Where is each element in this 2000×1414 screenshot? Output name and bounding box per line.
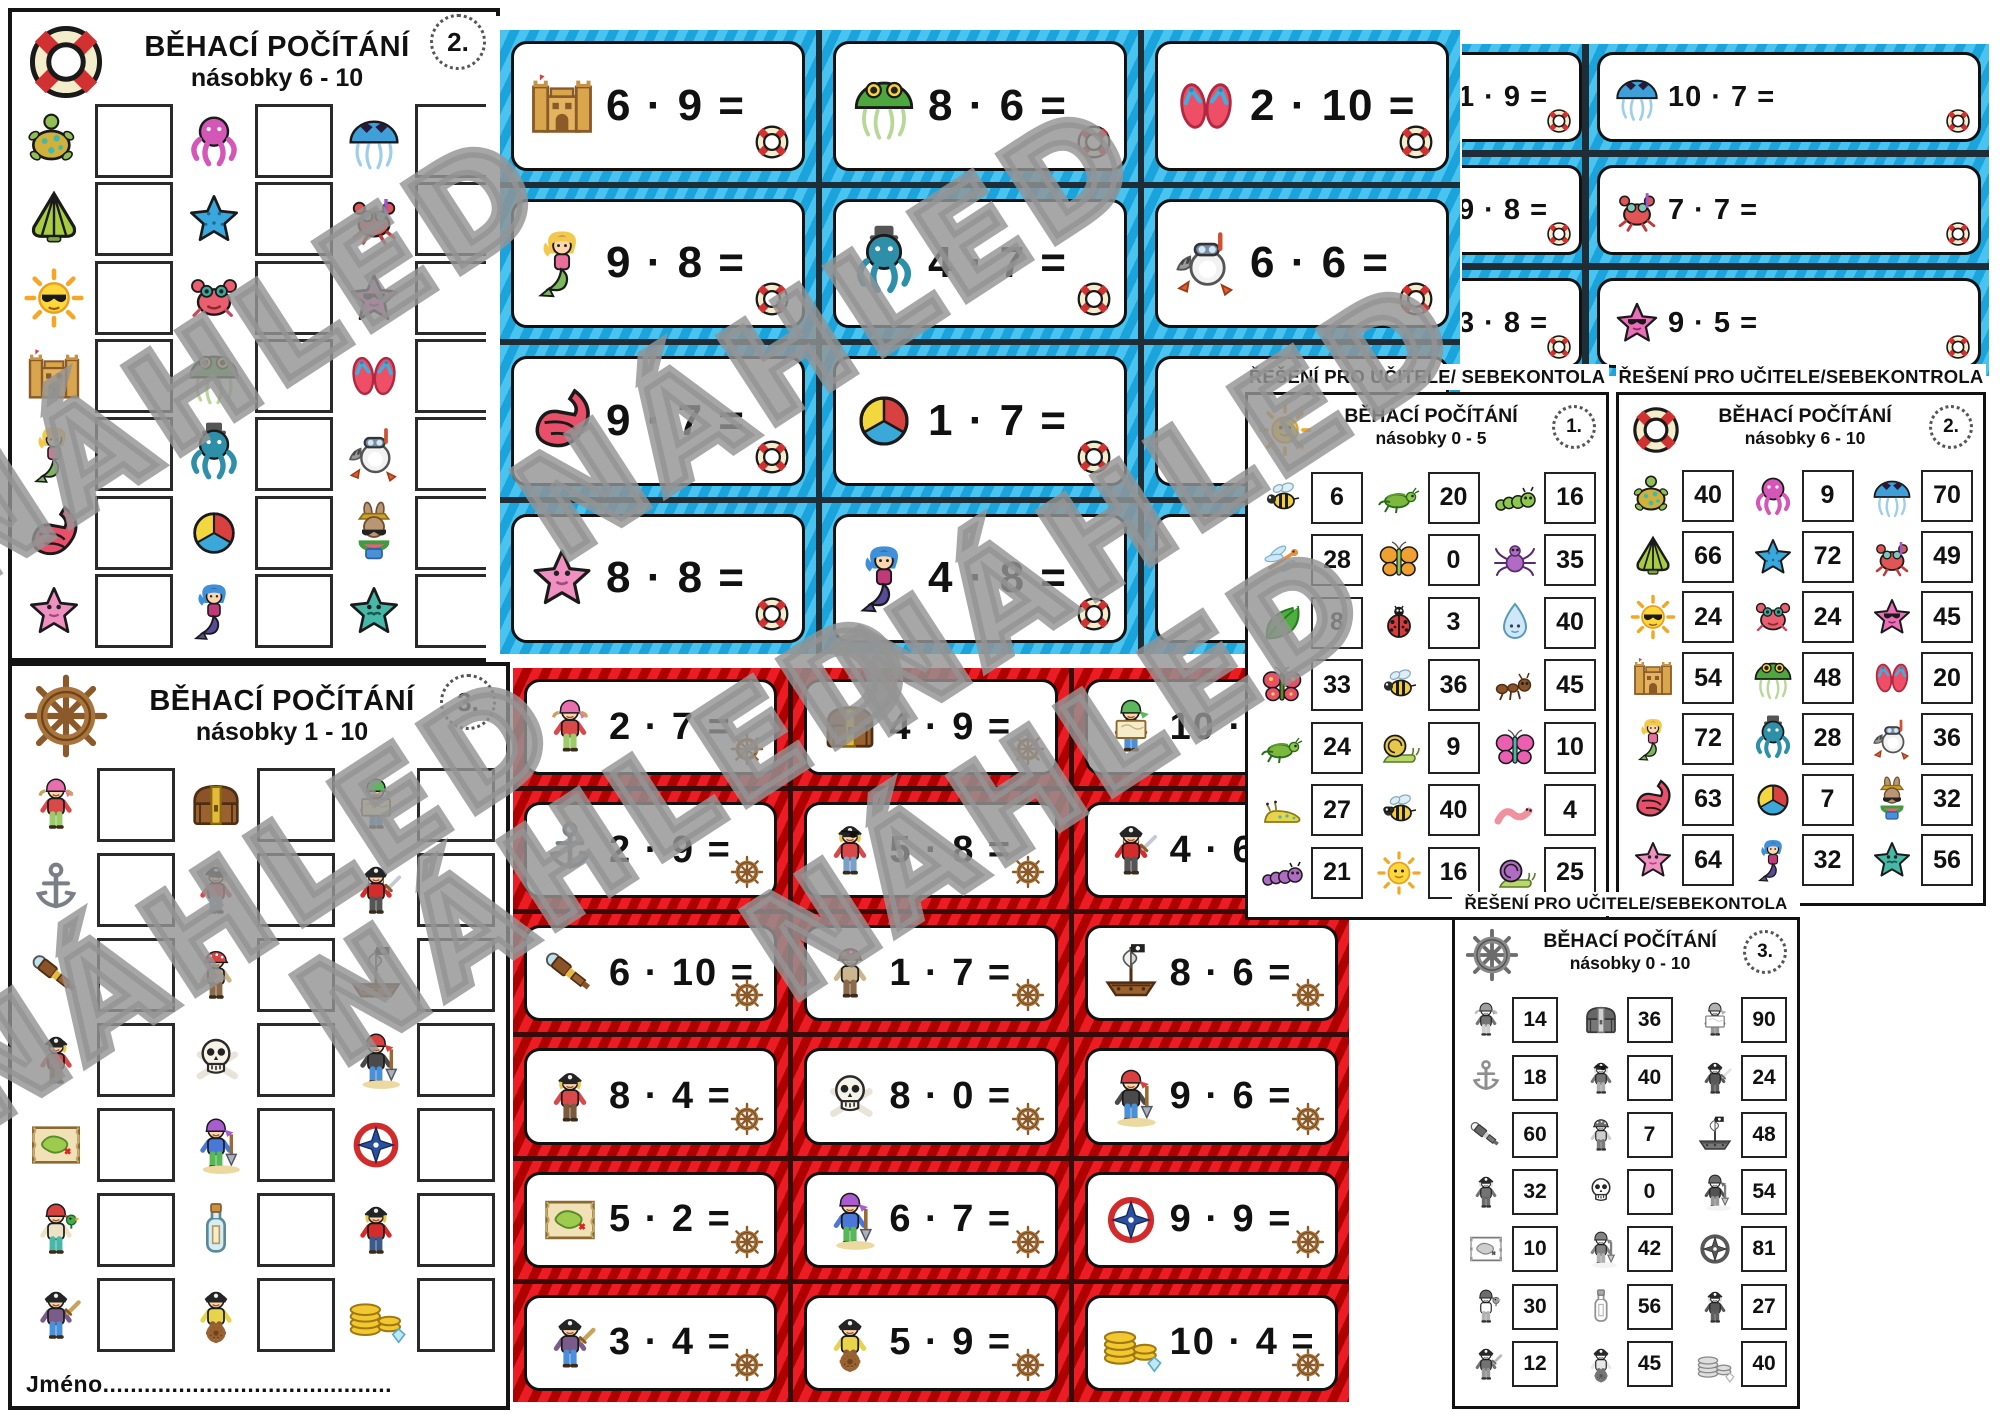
life-ring-icon [20,16,112,108]
math-card: 1 · 7 = [822,345,1138,497]
worksheet-row [22,572,493,650]
math-card-face: 5 · 2 = [524,1172,777,1268]
sheet-number-badge: 3. [1743,930,1787,974]
pirate-girl-icon [537,694,603,760]
bunny-icon [342,501,406,565]
pirate-eyepatch-icon [184,858,248,922]
ship-wheel-icon [1010,1224,1046,1260]
ship-wheel-icon [729,1347,765,1383]
answer-box [257,938,335,1012]
math-card: 9 · 9 = [1074,1161,1349,1279]
butterfly-pink-icon [1491,724,1539,772]
icon-answer-pair: 14 [1465,997,1558,1043]
worksheet-row [24,932,502,1017]
butterfly-red-icon [1258,661,1306,709]
spyglass-icon [1465,1114,1507,1156]
answer-box [255,496,333,570]
math-card: 4 · 7 = [822,188,1138,340]
answers-2-titlebar: BĚHACÍ POČÍTÁNÍ násobky 6 - 10 2. [1619,395,1983,459]
wheel-boy-icon [1580,1343,1622,1385]
life-ring-icon [1943,106,1973,136]
math-card: 5 · 2 = [513,1161,788,1279]
answers-row: 40970 [1629,470,1973,522]
treasure-chest-icon [817,694,883,760]
icon-answer-pair: 18 [1465,1055,1558,1101]
math-card-face: 8 · 8 = [511,514,805,644]
boy-shovel-icon [1694,1171,1736,1213]
answer-value: 30 [1512,1284,1558,1330]
answer-value: 54 [1741,1169,1787,1215]
compass-icon [1098,1187,1164,1253]
compass-icon [1694,1228,1736,1270]
answer-value: 35 [1544,534,1596,586]
icon-answer-pair: 66 [1629,531,1734,583]
page-subtitle: násobky 0 - 5 [1314,428,1548,449]
math-card: 5 · 9 = [793,1284,1068,1402]
blue-cards-back-grid: 1 · 9 =10 · 7 =9 · 8 =7 · 7 =3 · 8 =9 · … [1452,44,1989,376]
icon-answer-pair: 81 [1694,1226,1787,1272]
answer-value: 33 [1311,659,1363,711]
math-card: 1 · 9 = [1452,44,1582,150]
icon-answer-pair: 9 [1749,470,1854,522]
coins-icon [344,1283,408,1347]
octopus-pink-icon [1749,472,1797,520]
icon-answer-pair: 40 [1629,470,1734,522]
answer-value: 40 [1627,1055,1673,1101]
answer-value: 49 [1921,531,1973,583]
math-card: 9 · 8 = [500,188,816,340]
answer-value: 40 [1741,1341,1787,1387]
math-card: 9 · 6 = [1074,1037,1349,1155]
worksheet-page-3: BĚHACÍ POČÍTÁNÍ násobky 1 - 10 3. Jméno.… [8,662,510,1410]
octopus-pink-icon [182,109,246,173]
math-card: 6 · 7 = [793,1161,1068,1279]
answer-value: 45 [1544,659,1596,711]
math-card-face: 4 · 8 = [833,514,1127,644]
boy-shovel-icon [1098,1064,1164,1130]
ship-wheel-icon [1010,1347,1046,1383]
math-card: 7 · 7 = [1589,157,1989,263]
mermaid-blonde-icon [1629,715,1677,763]
expression: 4 · 8 = [928,553,1068,603]
life-ring-icon [1073,121,1115,163]
math-card-face: 4 · 7 = [833,199,1127,329]
turtle-icon [22,109,86,173]
ship-wheel-icon [729,854,765,890]
raccoon-snorkel-icon [1168,225,1244,301]
answers-sheet-2: BĚHACÍ POČÍTÁNÍ násobky 6 - 10 2. 409706… [1616,392,1986,906]
coins-icon [1694,1343,1736,1385]
starfish-pink-shades-icon [1610,296,1664,350]
page-subtitle: násobky 6 - 10 [112,64,442,93]
life-ring-icon [1073,278,1115,320]
answer-box [255,417,333,491]
answer-value: 66 [1682,531,1734,583]
icon-answer-pair: 25 [1491,847,1596,899]
starfish-teal-icon [1868,836,1916,884]
shell-red-icon [22,501,86,565]
math-card-face: 8 · 0 = [804,1048,1057,1144]
icon-answer-pair: 36 [1580,997,1673,1043]
life-ring-icon [751,593,793,635]
answer-box [257,1108,335,1182]
answer-box [417,1023,495,1097]
math-card-face: 9 · 9 = [1085,1172,1338,1268]
answer-box [95,574,173,648]
math-card: 9 · 8 = [1452,157,1582,263]
answers-header-1: ŘEŠENÍ PRO UČITELE/ SEBEKONTOLA [1245,364,1609,390]
treasure-map-icon [537,1187,603,1253]
icon-answer-pair: 54 [1629,652,1734,704]
math-card-face: 3 · 8 = [1452,278,1582,368]
raccoon-snorkel-icon [342,422,406,486]
answers-sheet-3: BĚHACÍ POČÍTÁNÍ násobky 0 - 10 3. 143690… [1452,917,1800,1409]
sun-icon [1256,401,1314,459]
icon-answer-pair: 72 [1749,531,1854,583]
pirate-girl-icon [24,773,88,837]
answer-box [255,104,333,178]
math-card: 3 · 8 = [1452,270,1582,376]
icon-answer-pair: 24 [1629,591,1734,643]
life-ring-icon [1395,121,1437,163]
answer-value: 12 [1512,1341,1558,1387]
icon-answer-pair: 70 [1868,470,1973,522]
answer-value: 32 [1921,774,1973,826]
answer-value: 45 [1921,591,1973,643]
starfish-pink-icon [22,579,86,643]
math-card-face: 6 · 6 = [1155,199,1449,329]
answer-value: 63 [1682,774,1734,826]
answer-box [415,574,493,648]
answers-row: 28035 [1258,534,1596,586]
sheet-number-badge: 2. [430,14,486,70]
math-card-face: 10 · 4 = [1085,1295,1338,1391]
answer-box [95,261,173,335]
answer-value: 40 [1544,597,1596,649]
worksheet-row [24,1188,502,1273]
math-card: 5 · 8 = [793,791,1068,909]
worksheet-2-header: BĚHACÍ POČÍTÁNÍ násobky 6 - 10 [20,18,488,106]
icon-answer-pair: 36 [1375,659,1480,711]
expression: 1 · 9 = [1458,81,1548,114]
answer-value: 81 [1741,1226,1787,1272]
shell-green-icon [1629,533,1677,581]
answers-row: 722836 [1629,713,1973,765]
answer-value: 27 [1311,784,1363,836]
starfish-blue-icon [1749,533,1797,581]
expression: 6 · 9 = [606,81,746,131]
ship-wheel-icon [1290,1224,1326,1260]
answer-box [255,261,333,335]
expression: 8 · 8 = [606,553,746,603]
answer-box [95,339,173,413]
icon-answer-pair: 20 [1868,652,1973,704]
answer-box [97,853,175,927]
icon-answer-pair: 20 [1375,472,1480,524]
answer-box [257,1023,335,1097]
icon-answer-pair: 21 [1258,847,1363,899]
math-card-face: 5 · 9 = [804,1295,1057,1391]
pirate-ship-icon [1098,940,1164,1006]
treasure-map-icon [24,1113,88,1177]
mermaid-blonde-icon [22,422,86,486]
math-card: 8 · 6 = [822,30,1138,182]
icon-answer-pair: 6 [1258,472,1363,524]
sandcastle-icon [524,68,600,144]
expression: 2 · 9 = [609,829,732,872]
worksheet-3-header: BĚHACÍ POČÍTÁNÍ násobky 1 - 10 [20,672,498,760]
answer-value: 10 [1512,1226,1558,1272]
icon-answer-pair: 63 [1629,774,1734,826]
icon-answer-pair: 49 [1868,531,1973,583]
icon-answer-pair: 27 [1258,784,1363,836]
beachball-icon [846,383,922,459]
turtle-icon [1629,472,1677,520]
math-card-face: 7 · 7 = [1597,165,1981,255]
starfish-blue-icon [182,187,246,251]
ship-wheel-icon [1290,1347,1326,1383]
expression: 8 · 4 = [609,1075,732,1118]
pirate-blond-icon [537,1064,603,1130]
life-ring-icon [751,436,793,478]
pirate-girl-red-icon [1580,1114,1622,1156]
worksheet-row [22,415,493,493]
starfish-pink-icon [524,540,600,616]
worksheet-3-grid [24,762,502,1358]
answer-box [417,853,495,927]
page-subtitle: násobky 1 - 10 [112,718,452,747]
expression: 4 · 7 = [928,238,1068,288]
answer-box [415,339,493,413]
compass-icon [344,1113,408,1177]
answer-value: 21 [1311,847,1363,899]
icon-answer-pair: 0 [1580,1169,1673,1215]
expression: 3 · 4 = [609,1321,732,1364]
expression: 5 · 8 = [889,829,1012,872]
expression: 8 · 0 = [889,1075,1012,1118]
answers-row: 63732 [1629,774,1973,826]
bee-icon [1375,661,1423,709]
answer-value: 3 [1428,597,1480,649]
crab-snorkel-icon [342,187,406,251]
octopus-teal-icon [846,225,922,301]
jellyfish-blue-icon [1610,70,1664,124]
math-card: 6 · 6 = [1144,188,1460,340]
life-ring-icon [1544,106,1574,136]
icon-answer-pair: 90 [1694,997,1787,1043]
icon-answer-pair: 0 [1375,534,1480,586]
math-card-face: 1 · 7 = [804,925,1057,1021]
flipflops-icon [342,344,406,408]
shell-red-icon [524,383,600,459]
map-boy-icon [1098,694,1164,760]
answers-row: 333645 [1258,659,1596,711]
icon-answer-pair: 28 [1258,534,1363,586]
expression: 5 · 2 = [609,1198,732,1241]
expression: 9 · 6 = [1170,1075,1293,1118]
answer-value: 90 [1741,997,1787,1043]
ship-wheel-icon [729,731,765,767]
answers-row: 124540 [1465,1341,1787,1387]
answer-value: 36 [1428,659,1480,711]
math-card: 10 · 7 = [1589,44,1989,150]
sandcastle-icon [22,344,86,408]
answer-value: 16 [1544,472,1596,524]
coins-icon [1098,1310,1164,1376]
map-boy-icon [1694,999,1736,1041]
flipflops-icon [1868,654,1916,702]
icon-answer-pair: 33 [1258,659,1363,711]
answer-value: 27 [1741,1284,1787,1330]
expression: 6 · 6 = [1250,238,1390,288]
boy-shovel-icon [344,1028,408,1092]
math-card: 6 · 10 = [513,914,788,1032]
beachball-icon [182,501,246,565]
expression: 6 · 7 = [889,1198,1012,1241]
answer-value: 70 [1921,470,1973,522]
icon-answer-pair: 30 [1465,1284,1558,1330]
page-title: BĚHACÍ POČÍTÁNÍ [112,31,442,64]
answer-box [97,1278,175,1352]
math-card-face: 5 · 8 = [804,802,1057,898]
icon-answer-pair: 42 [1580,1226,1673,1272]
expression: 2 · 7 = [609,706,732,749]
math-card: 1 · 7 = [793,914,1068,1032]
skull-icon [817,1064,883,1130]
math-card: 4 · 9 = [793,668,1068,786]
spider-icon [1491,536,1539,584]
worksheet-row [22,337,493,415]
icon-answer-pair: 48 [1694,1112,1787,1158]
answers-row: 305627 [1465,1284,1787,1330]
bunny-icon [1868,776,1916,824]
answer-box [415,417,493,491]
expression: 8 · 6 = [928,81,1068,131]
page-subtitle: násobky 0 - 10 [1521,953,1739,974]
answer-box [415,261,493,335]
answer-value: 42 [1627,1226,1673,1272]
jellyfish-green-icon [182,344,246,408]
skull-icon [184,1028,248,1092]
answer-box [417,768,495,842]
starfish-teal-icon [342,579,406,643]
math-card-face: 6 · 9 = [511,41,805,171]
expression: 9 · 8 = [1458,194,1548,227]
jellyfish-blue-icon [342,109,406,173]
math-card-face: 1 · 7 = [833,356,1127,486]
ship-wheel-icon [1010,731,1046,767]
bottle-icon [1580,1286,1622,1328]
answers-row: 62016 [1258,472,1596,524]
icon-answer-pair: 40 [1491,597,1596,649]
bee-icon [1258,474,1306,522]
octopus-teal-icon [182,422,246,486]
expression: 9 · 5 = [1668,307,1758,340]
answer-value: 24 [1682,591,1734,643]
answer-box [97,768,175,842]
answer-value: 32 [1802,834,1854,886]
girl-shovel-icon [1580,1228,1622,1270]
expression: 3 · 8 = [1458,307,1548,340]
grasshopper-icon [1375,474,1423,522]
math-card: 2 · 7 = [513,668,788,786]
answers-row: 8340 [1258,597,1596,649]
boy-sword-icon [24,1283,88,1347]
sun-shades-icon [1629,593,1677,641]
sheet-number-badge: 2. [1929,405,1973,449]
mermaid-blue-icon [846,540,922,616]
worksheet-page-2: BĚHACÍ POČÍTÁNÍ násobky 6 - 10 2. [8,8,500,662]
math-card-face: 4 · 9 = [804,679,1057,775]
worksheet-row [22,493,493,571]
parrot-girl-icon [1465,1286,1507,1328]
answer-value: 7 [1627,1112,1673,1158]
page-subtitle: násobky 6 - 10 [1685,428,1925,449]
icon-answer-pair: 10 [1491,722,1596,774]
answer-box [415,496,493,570]
icon-answer-pair: 32 [1749,834,1854,886]
mermaid-blonde-icon [524,225,600,301]
spyglass-icon [537,940,603,1006]
pirate-blond-icon [1465,1171,1507,1213]
life-ring-icon [1395,278,1437,320]
expression: 10 · 7 = [1668,81,1775,114]
sun-icon [1375,849,1423,897]
worksheet-row [24,847,502,932]
sun-shades-icon [22,266,86,330]
boy-sword-icon [1465,1343,1507,1385]
dragonfly-icon [1258,536,1306,584]
treasure-map-icon [1465,1228,1507,1270]
answer-value: 54 [1682,652,1734,704]
math-card-face: 6 · 10 = [524,925,777,1021]
icon-answer-pair: 24 [1258,722,1363,774]
starfish-pink-icon [1629,836,1677,884]
math-card: 8 · 8 = [500,503,816,655]
expression: 8 · 6 = [1170,952,1293,995]
answers-header-2: ŘEŠENÍ PRO UČITELE/SEBEKONTROLA [1616,364,1986,390]
jellyfish-green-icon [1749,654,1797,702]
bottle-icon [184,1198,248,1262]
answer-box [257,768,335,842]
icon-answer-pair: 45 [1580,1341,1673,1387]
treasure-chest-icon [184,773,248,837]
slug-icon [1258,786,1306,834]
answer-value: 48 [1802,652,1854,704]
icon-answer-pair: 54 [1694,1169,1787,1215]
life-ring-icon [1627,401,1685,459]
icon-answer-pair: 16 [1491,472,1596,524]
answer-value: 40 [1428,784,1480,836]
answer-box [257,853,335,927]
sheet-number-badge: 3. [440,674,496,730]
answers-row: 104281 [1465,1226,1787,1272]
grasshopper-icon [1258,724,1306,772]
boy-redcoat-icon [344,1198,408,1262]
caterpillar-purple-icon [1258,849,1306,897]
answers-1-titlebar: BĚHACÍ POČÍTÁNÍ násobky 0 - 5 1. [1248,395,1606,459]
answers-row: 184024 [1465,1055,1787,1101]
ship-wheel-icon [729,977,765,1013]
skull-icon [1580,1171,1622,1213]
anchor-icon [1465,1057,1507,1099]
answers-row: 667249 [1629,531,1973,583]
icon-answer-pair: 60 [1465,1112,1558,1158]
crab-red-icon [1749,593,1797,641]
answer-value: 24 [1741,1055,1787,1101]
math-card: 4 · 8 = [822,503,1138,655]
math-card: 8 · 0 = [793,1037,1068,1155]
